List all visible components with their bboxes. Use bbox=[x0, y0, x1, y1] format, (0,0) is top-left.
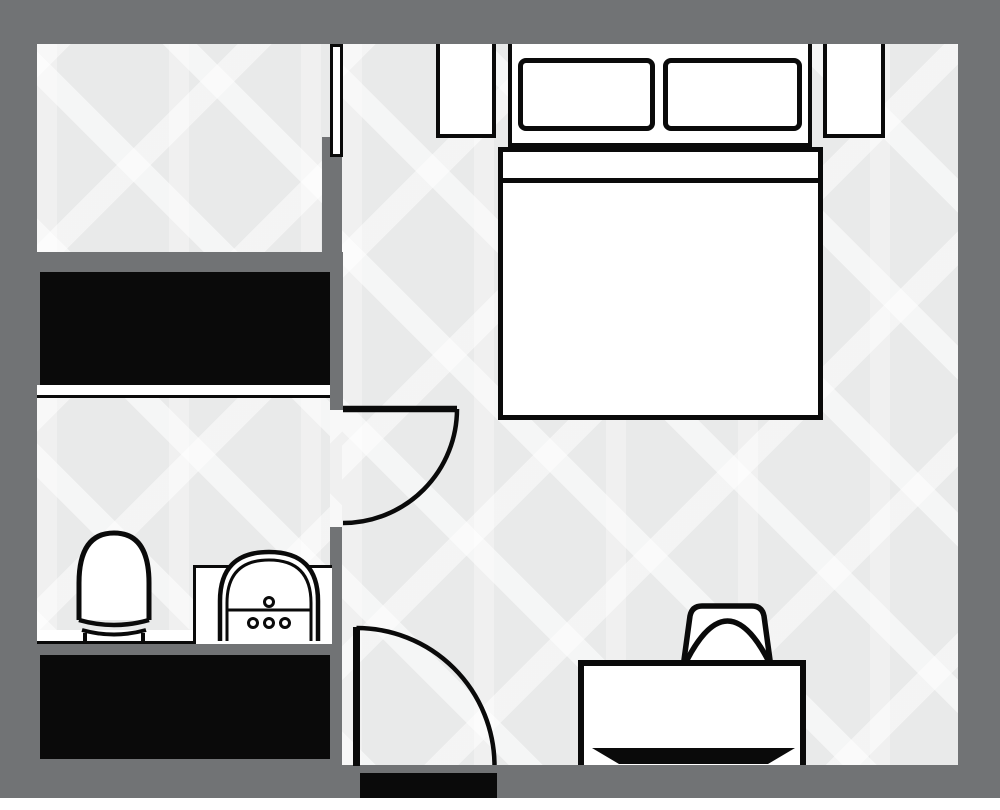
floor-plan bbox=[0, 0, 1000, 810]
desk bbox=[578, 660, 806, 765]
wall-segment bbox=[37, 252, 343, 272]
bed-sheet-fold-line bbox=[498, 178, 823, 183]
wardrobe-block bbox=[40, 272, 330, 385]
nightstand-icon bbox=[823, 44, 885, 138]
wall-segment bbox=[330, 527, 342, 765]
shelf-edge bbox=[37, 385, 330, 398]
vanity-counter bbox=[193, 565, 332, 644]
pillow-icon bbox=[663, 58, 802, 131]
window-icon bbox=[330, 44, 343, 157]
nightstand-icon bbox=[436, 44, 496, 138]
wall-segment bbox=[37, 644, 330, 655]
bed bbox=[498, 147, 823, 420]
bathroom-counter-block bbox=[40, 655, 330, 759]
entry-door-threshold bbox=[360, 773, 497, 798]
pillow-icon bbox=[518, 58, 655, 131]
wall-segment bbox=[332, 272, 343, 410]
closet-room-floor bbox=[37, 44, 330, 252]
bathroom-door-opening bbox=[330, 410, 342, 527]
